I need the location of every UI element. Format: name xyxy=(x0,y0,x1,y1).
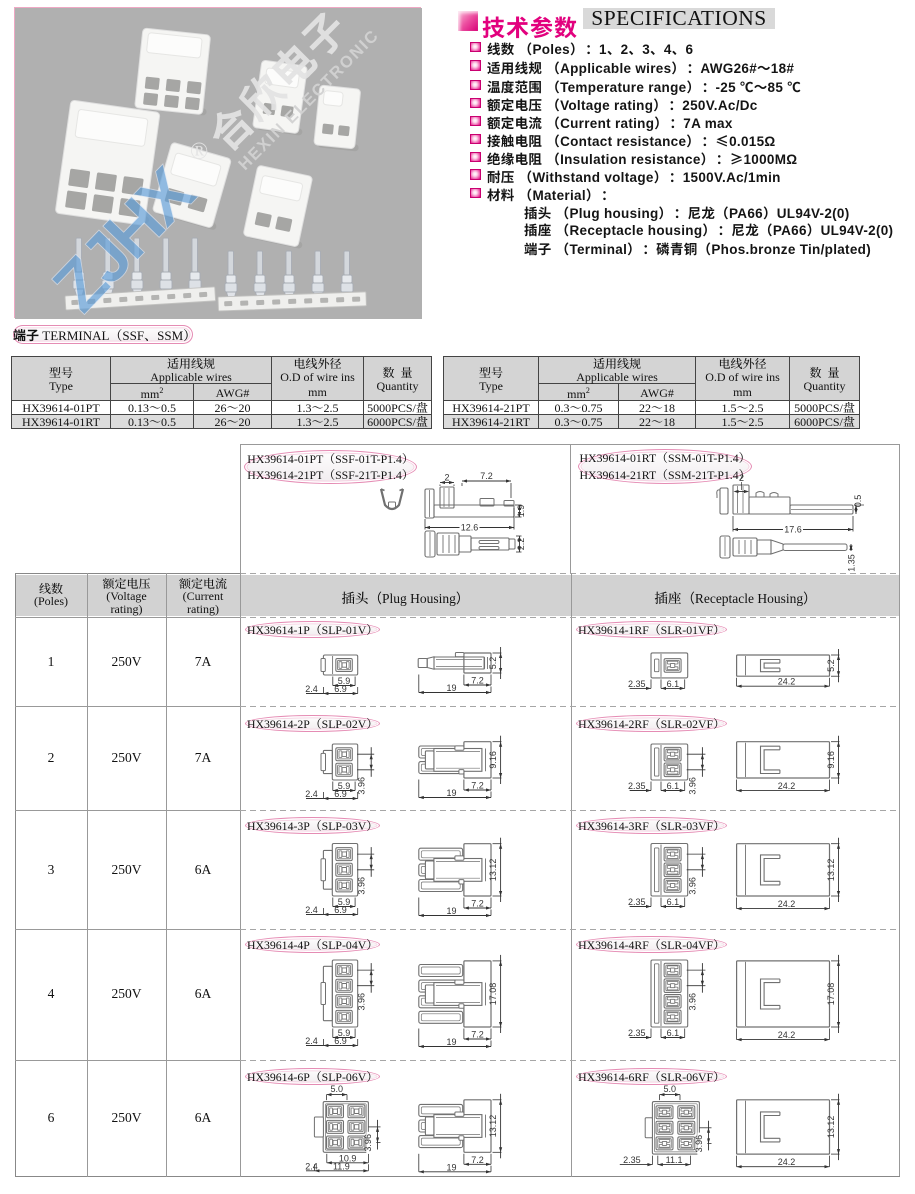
svg-text:3.96: 3.96 xyxy=(357,993,367,1011)
svg-text:7.2: 7.2 xyxy=(471,1030,484,1040)
svg-text:6.9: 6.9 xyxy=(334,789,347,799)
svg-text:3.96: 3.96 xyxy=(688,777,698,795)
svg-text:2.35: 2.35 xyxy=(628,897,646,907)
svg-text:5.9: 5.9 xyxy=(338,676,351,686)
svg-text:6.1: 6.1 xyxy=(667,679,680,689)
svg-text:9.16: 9.16 xyxy=(826,751,836,769)
svg-text:6.9: 6.9 xyxy=(334,1036,347,1046)
svg-text:2.4: 2.4 xyxy=(305,905,318,915)
svg-text:7.2: 7.2 xyxy=(471,781,484,791)
svg-text:3.96: 3.96 xyxy=(688,993,698,1011)
svg-text:19: 19 xyxy=(446,906,456,916)
svg-text:6.9: 6.9 xyxy=(334,684,347,694)
svg-text:5.2: 5.2 xyxy=(488,657,498,670)
svg-text:13.12: 13.12 xyxy=(826,859,836,882)
svg-text:6.1: 6.1 xyxy=(667,897,680,907)
svg-text:24.2: 24.2 xyxy=(778,1157,796,1167)
svg-text:7.2: 7.2 xyxy=(471,899,484,909)
svg-text:2.4: 2.4 xyxy=(305,1161,318,1171)
svg-text:2.35: 2.35 xyxy=(623,1155,641,1165)
svg-text:24.2: 24.2 xyxy=(778,677,796,687)
svg-text:3.96: 3.96 xyxy=(363,1134,373,1152)
svg-text:3.96: 3.96 xyxy=(357,777,367,795)
svg-text:®: ® xyxy=(190,139,208,165)
svg-text:3.96: 3.96 xyxy=(688,877,698,895)
svg-text:2.35: 2.35 xyxy=(628,679,646,689)
svg-text:13.12: 13.12 xyxy=(488,1115,498,1138)
svg-text:11.9: 11.9 xyxy=(333,1161,350,1171)
svg-text:2.35: 2.35 xyxy=(628,781,646,791)
svg-text:17.08: 17.08 xyxy=(826,983,836,1006)
svg-text:24.2: 24.2 xyxy=(778,1030,796,1040)
svg-text:2.4: 2.4 xyxy=(305,789,318,799)
svg-text:5.0: 5.0 xyxy=(330,1084,343,1094)
svg-text:19: 19 xyxy=(446,683,456,693)
svg-text:19: 19 xyxy=(446,1162,456,1172)
svg-text:7.2: 7.2 xyxy=(471,1155,484,1165)
svg-text:6.9: 6.9 xyxy=(334,905,347,915)
svg-text:2.4: 2.4 xyxy=(305,1036,318,1046)
svg-text:5.9: 5.9 xyxy=(338,897,351,907)
svg-text:5.9: 5.9 xyxy=(338,781,351,791)
svg-text:6.1: 6.1 xyxy=(667,1028,680,1038)
svg-text:11.1: 11.1 xyxy=(666,1155,683,1165)
svg-text:3.96: 3.96 xyxy=(357,877,367,895)
svg-text:9.16: 9.16 xyxy=(488,751,498,769)
svg-text:19: 19 xyxy=(446,788,456,798)
svg-text:6.1: 6.1 xyxy=(667,781,680,791)
svg-text:2.35: 2.35 xyxy=(628,1028,646,1038)
svg-text:5.9: 5.9 xyxy=(338,1028,351,1038)
svg-text:3.96: 3.96 xyxy=(694,1135,704,1153)
svg-text:13.12: 13.12 xyxy=(488,859,498,882)
svg-text:5.2: 5.2 xyxy=(826,659,836,672)
svg-text:10.9: 10.9 xyxy=(339,1153,357,1163)
svg-text:24.2: 24.2 xyxy=(778,781,796,791)
svg-text:19: 19 xyxy=(446,1037,456,1047)
svg-text:17.08: 17.08 xyxy=(488,983,498,1006)
svg-text:2.4: 2.4 xyxy=(305,684,318,694)
svg-text:7.2: 7.2 xyxy=(471,676,484,686)
svg-text:13.12: 13.12 xyxy=(826,1116,836,1139)
svg-text:24.2: 24.2 xyxy=(778,899,796,909)
svg-text:5.0: 5.0 xyxy=(663,1084,676,1094)
